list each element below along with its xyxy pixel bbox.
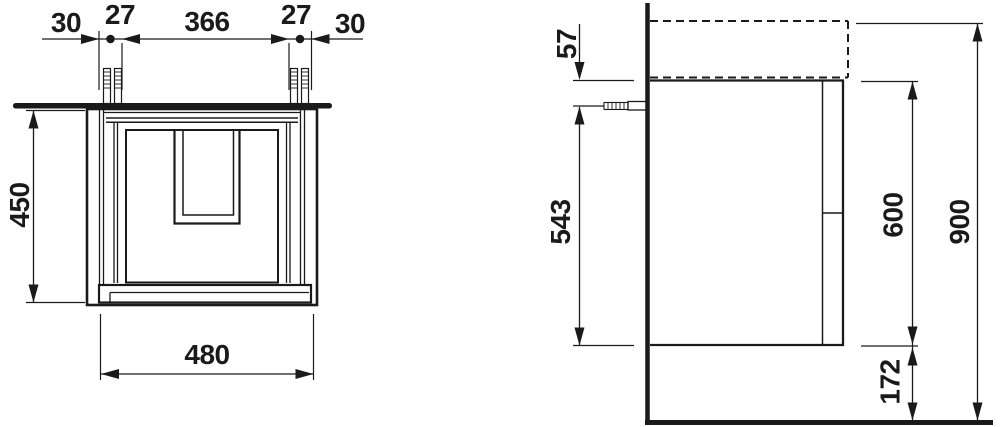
wall-plug-icon bbox=[104, 69, 111, 104]
dim-fixing-543: 543 bbox=[545, 106, 634, 346]
arrow-down-icon bbox=[29, 285, 39, 303]
wall-plug-icon bbox=[115, 69, 122, 104]
dim-width-480: 480 bbox=[101, 314, 314, 380]
wall-plug-icons-front bbox=[104, 69, 309, 104]
front-top-dimension-chain: 30 27 366 27 30 bbox=[42, 0, 365, 90]
arrow-up-icon bbox=[29, 111, 39, 129]
dimension-drawing: 30 27 366 27 30 bbox=[0, 0, 1000, 427]
countertop-bar bbox=[13, 103, 332, 109]
arrow-down-icon bbox=[908, 327, 918, 345]
arrow-left-icon bbox=[101, 369, 119, 379]
dim-height-450: 450 bbox=[4, 111, 85, 303]
arrow-down-icon bbox=[575, 328, 585, 346]
side-view: 57 543 600 172 9 bbox=[545, 3, 993, 424]
arrow-down-icon bbox=[575, 62, 585, 80]
dim-label-30-left: 30 bbox=[51, 7, 81, 38]
arrow-down-icon bbox=[973, 403, 983, 421]
cabinet-side-body bbox=[650, 80, 844, 347]
dim-label-480: 480 bbox=[184, 339, 229, 370]
wall-plug-icon bbox=[291, 69, 298, 104]
drawer-front-panel bbox=[126, 130, 278, 283]
arrow-left-icon bbox=[312, 34, 330, 44]
front-view: 30 27 366 27 30 bbox=[4, 0, 365, 380]
arrow-up-icon bbox=[908, 82, 918, 100]
arrow-down-icon bbox=[908, 403, 918, 421]
dim-body-600-172: 600 172 bbox=[861, 82, 918, 421]
wall-plug-icon bbox=[302, 69, 309, 104]
siphon-cutout bbox=[175, 130, 240, 224]
arrow-right-icon bbox=[296, 369, 314, 379]
arrow-right-icon bbox=[271, 34, 289, 44]
dim-label-172: 172 bbox=[875, 359, 906, 404]
dim-label-450: 450 bbox=[4, 182, 35, 227]
plinth-base bbox=[99, 285, 311, 303]
dim-label-543: 543 bbox=[545, 199, 576, 244]
dim-label-27-left: 27 bbox=[105, 0, 135, 30]
dim-basin-57: 57 bbox=[551, 24, 634, 81]
arrow-up-icon bbox=[973, 24, 983, 42]
dim-label-57: 57 bbox=[551, 29, 582, 59]
arrow-up-icon bbox=[575, 107, 585, 125]
dim-label-600: 600 bbox=[878, 192, 909, 237]
cabinet-front-body bbox=[87, 109, 317, 305]
chain-point-dot bbox=[296, 35, 305, 44]
arrow-left-icon bbox=[122, 34, 140, 44]
dim-label-366: 366 bbox=[184, 6, 229, 37]
dim-label-27-right: 27 bbox=[281, 0, 311, 30]
dim-label-900: 900 bbox=[944, 199, 975, 244]
technical-drawing-svg: 30 27 366 27 30 bbox=[0, 0, 1000, 427]
washbasin-dashed-outline bbox=[650, 21, 848, 78]
dim-label-30-right: 30 bbox=[335, 8, 365, 39]
chain-point-dot bbox=[106, 35, 115, 44]
arrow-right-icon bbox=[81, 34, 99, 44]
arrow-up-icon bbox=[908, 348, 918, 366]
